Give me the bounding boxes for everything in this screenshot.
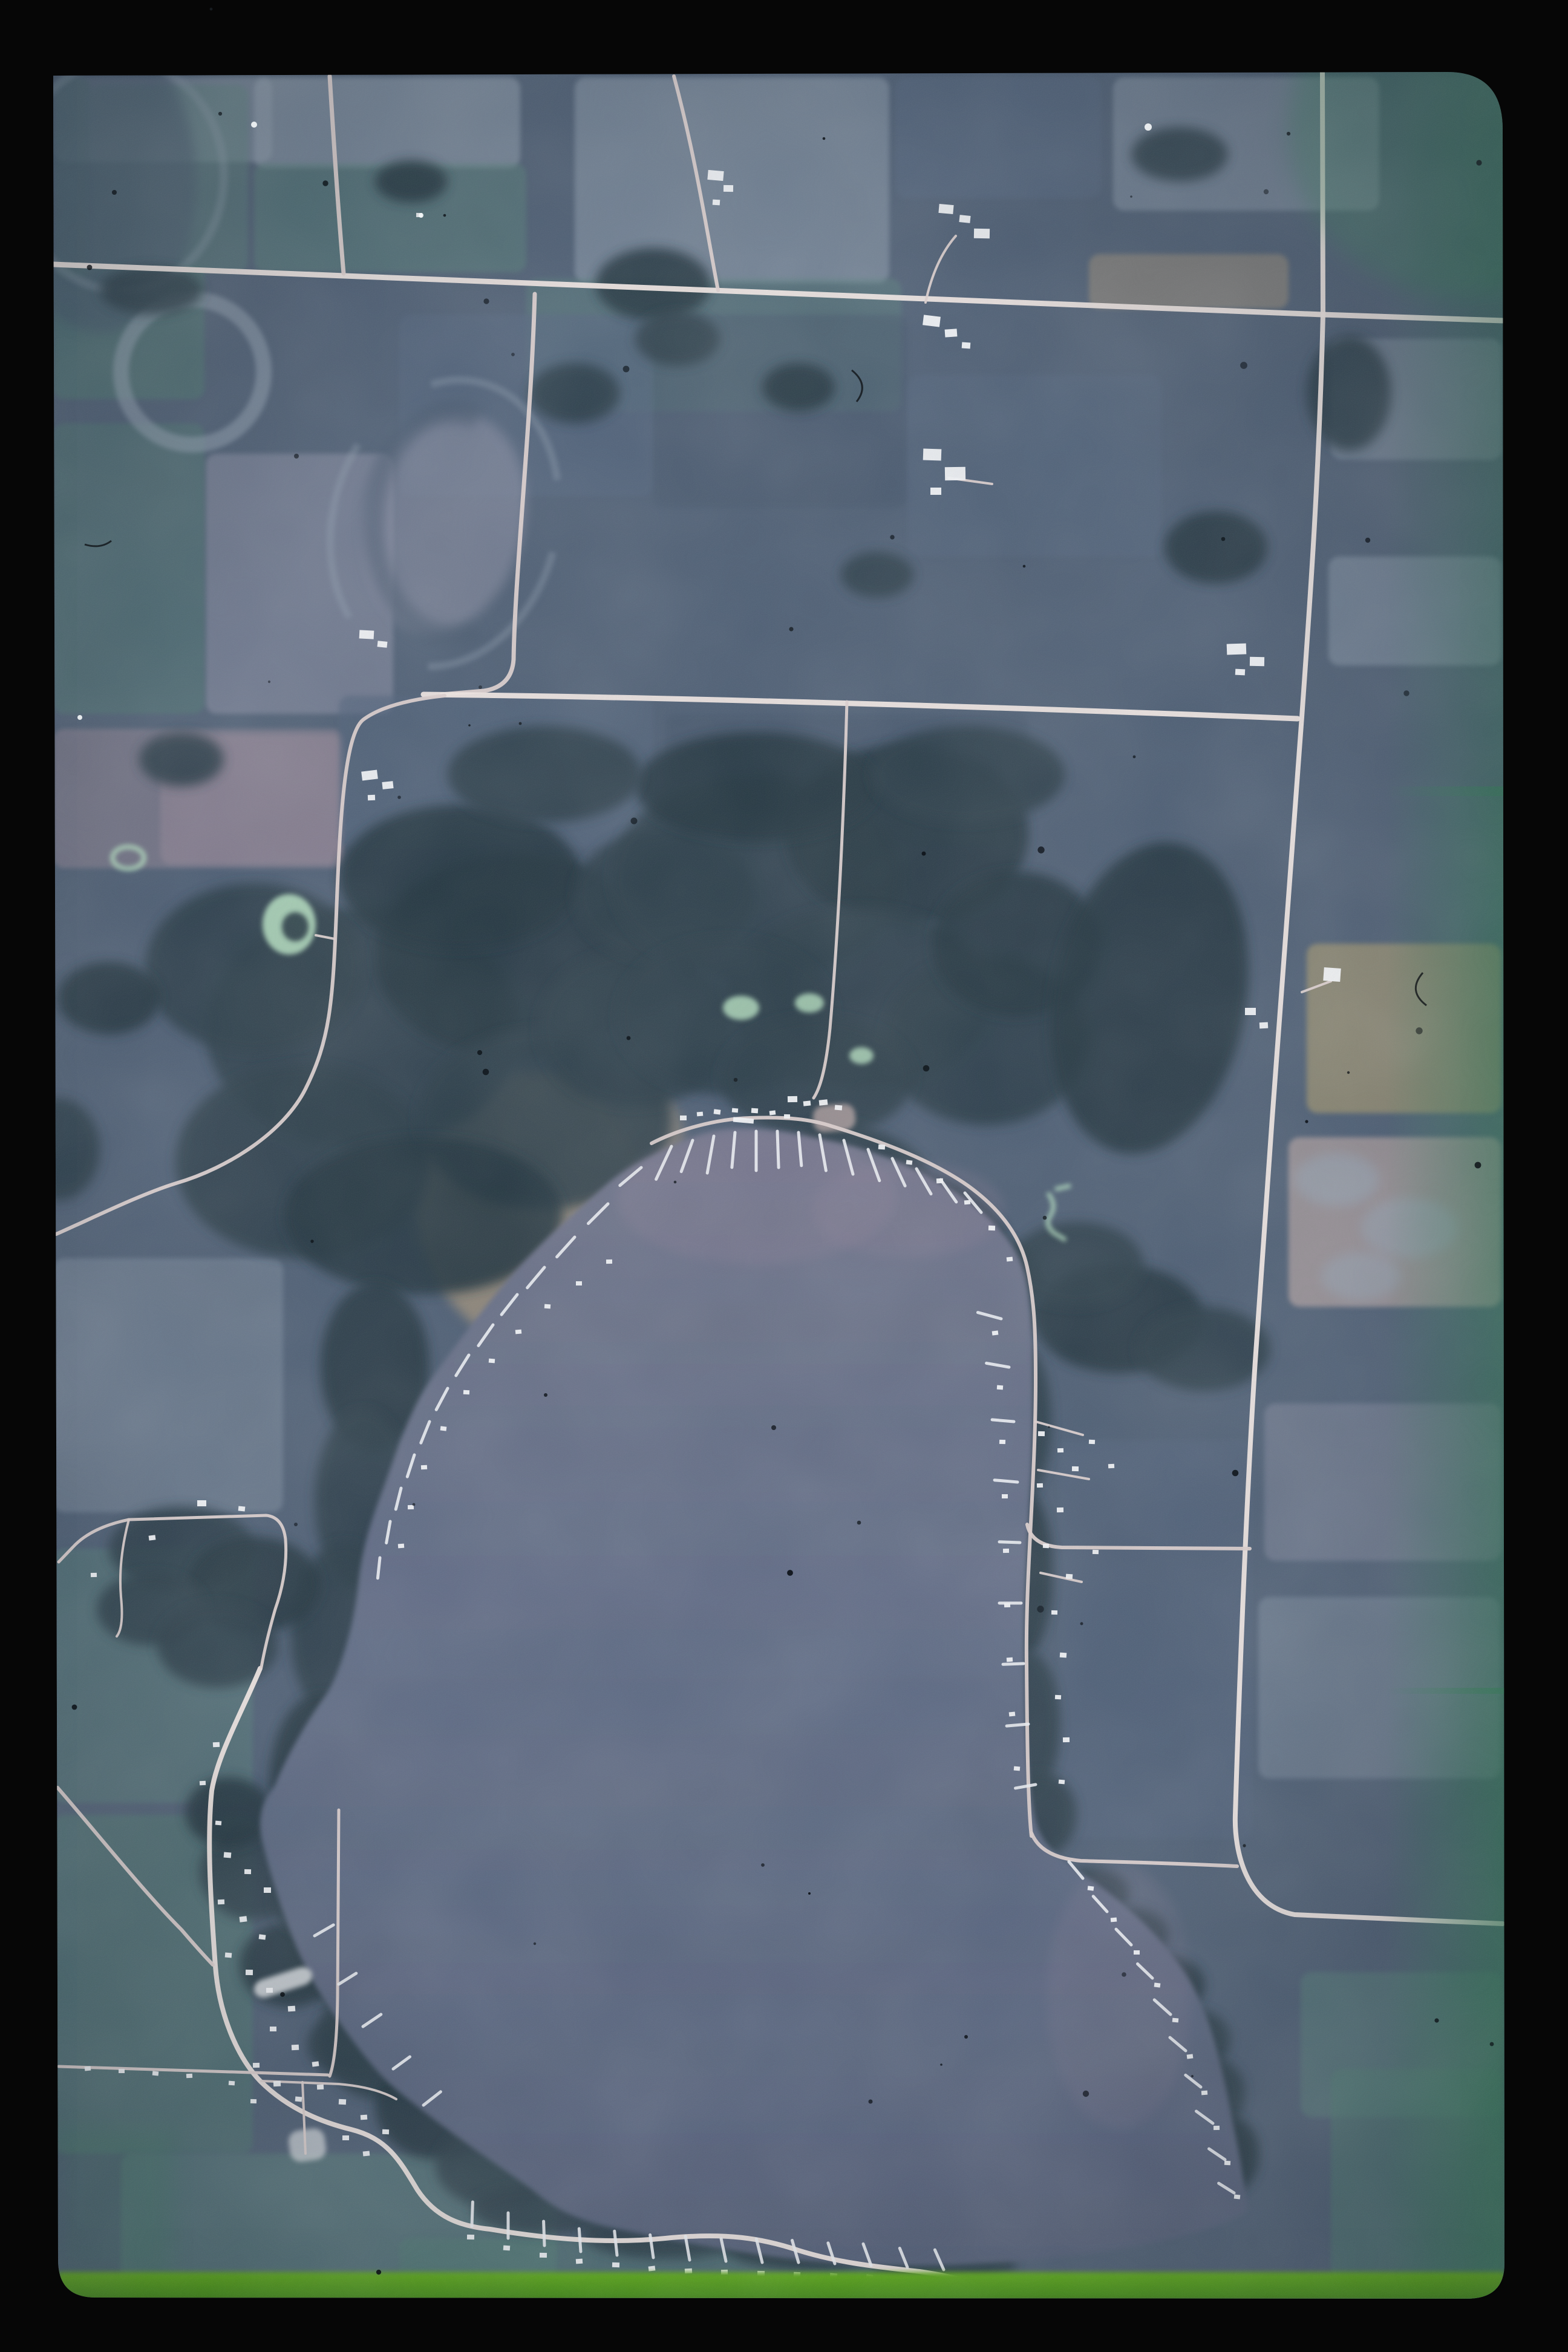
film-grain [53,70,1505,2302]
dust-speck [1130,195,1132,198]
dust-speck [1133,756,1136,759]
dust-speck [890,535,894,539]
dust-speck [771,1425,776,1430]
dust-speck [940,2063,942,2066]
dust-speck [631,818,638,825]
dust-speck [1191,2075,1194,2077]
dust-speck [674,1181,677,1184]
dust-speck [218,112,222,116]
dust-speck [1475,1162,1481,1169]
dust-speck [483,1069,489,1076]
dust-speck [1416,1027,1422,1034]
dust-speck [294,454,299,459]
dust-speck [1232,1470,1239,1477]
dust-speck [789,627,793,631]
dust-speck [310,1240,313,1243]
dust-speck [1305,1120,1308,1123]
dust-speck [1476,160,1481,165]
pinhole [419,213,423,218]
dust-speck [322,180,328,186]
dust-speck [1287,132,1290,136]
dust-speck [808,1892,811,1895]
dust-speck [1347,1071,1350,1074]
aerial-photo-canvas [0,0,1568,2352]
dust-speck [477,1050,482,1055]
dust-speck [761,1863,765,1867]
dust-speck [1221,537,1226,541]
dust-speck [519,722,522,725]
dust-speck [468,724,471,727]
dust-speck [268,681,270,683]
dust-speck [1490,2042,1494,2047]
dust-speck [1243,1844,1246,1847]
dust-speck [1037,846,1044,853]
dust-speck [1023,565,1026,568]
dust-speck [443,214,446,217]
dust-speck [511,353,515,356]
dust-speck [1043,1216,1047,1220]
dust-speck [210,8,213,11]
dust-speck [112,190,117,195]
dust-speck [87,265,93,270]
dust-speck [823,137,826,140]
dust-speck [857,1521,861,1525]
dust-speck [413,1503,416,1506]
dust-speck [964,2035,968,2039]
dust-speck [1122,1972,1126,1977]
pinhole [251,122,257,128]
dust-speck [1037,1606,1044,1612]
dust-speck [72,1705,77,1710]
dust-speck [1048,1426,1050,1428]
dust-speck [787,1570,793,1576]
aerial-photograph [3,0,1568,2331]
dust-speck [627,1036,631,1040]
dust-speck [1080,1622,1083,1625]
dust-speck [923,1065,930,1072]
dust-speck [1365,538,1370,543]
dust-speck [376,2270,381,2275]
pinhole [1145,123,1152,131]
dust-speck [623,366,630,373]
dust-speck [734,1078,738,1082]
slide-viewer [0,0,1568,2352]
dust-speck [280,1992,285,1997]
dust-speck [479,685,482,689]
dust-speck [922,852,926,856]
dust-speck [1403,690,1409,696]
dust-speck [294,1523,298,1526]
dust-speck [534,1942,536,1945]
dust-speck [869,2100,873,2104]
pinhole [77,715,82,720]
dust-speck [483,298,489,304]
dust-speck [397,795,401,799]
dust-speck [1240,362,1247,369]
dust-speck [544,1393,547,1397]
dust-speck [1083,2091,1089,2097]
dust-speck [1434,2018,1439,2022]
dust-speck [1264,189,1269,194]
